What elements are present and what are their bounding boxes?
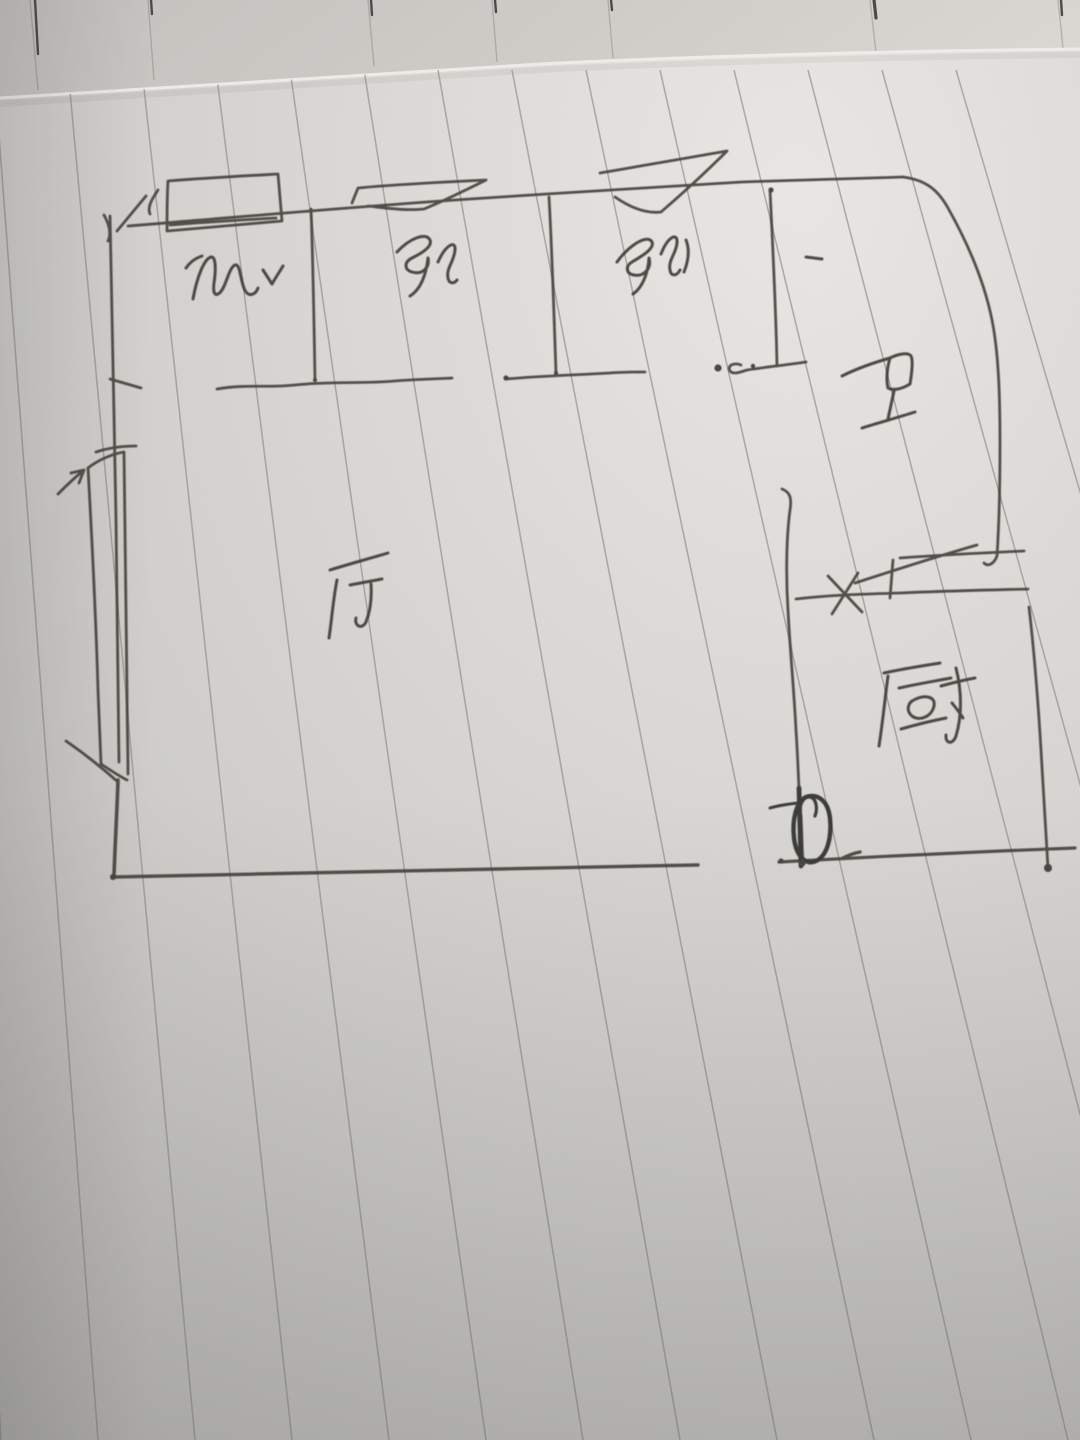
photo-of-floorplan-sketch <box>0 0 1080 1440</box>
photo-grain <box>0 0 1080 1440</box>
sketch-canvas <box>0 0 1080 1440</box>
